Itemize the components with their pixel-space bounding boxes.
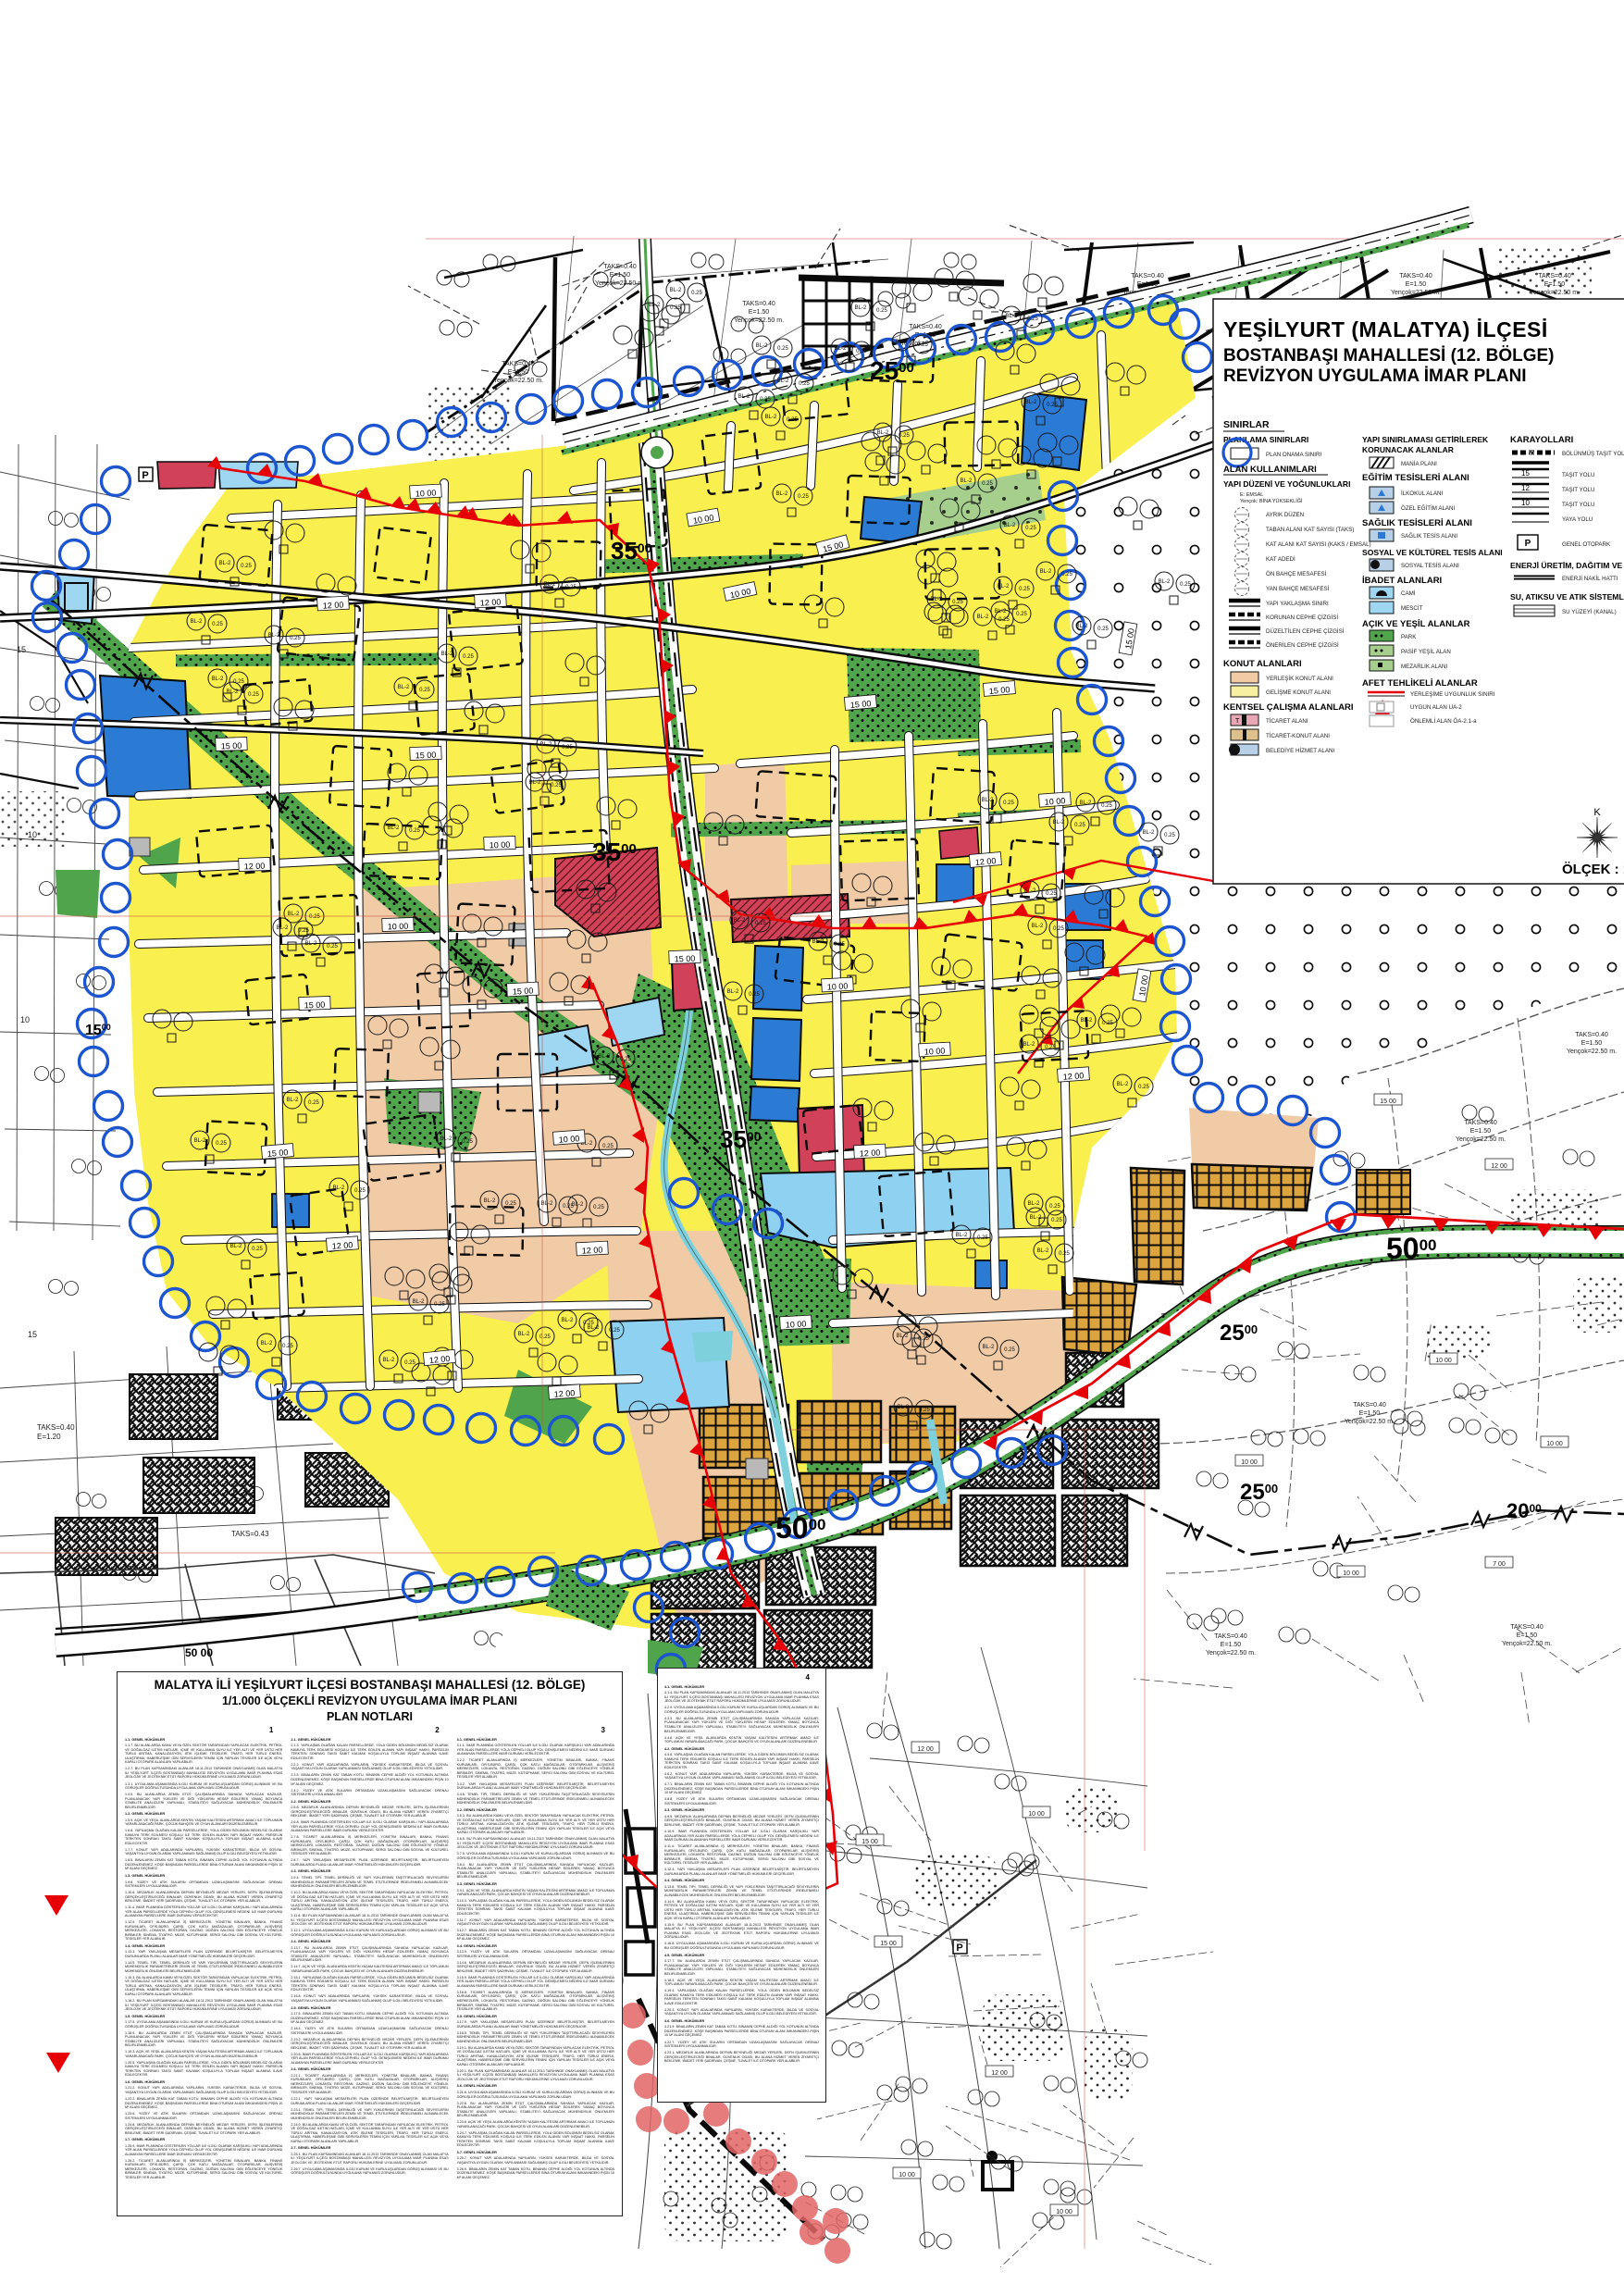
svg-text:15 00: 15 00 bbox=[304, 1000, 326, 1011]
svg-text:TİCARET ALANI: TİCARET ALANI bbox=[1266, 718, 1308, 725]
svg-text:0.25: 0.25 bbox=[241, 564, 252, 569]
svg-text:0.25: 0.25 bbox=[691, 291, 702, 296]
svg-text:E: EMSAL: E: EMSAL bbox=[1240, 492, 1263, 498]
svg-text:15 00: 15 00 bbox=[1380, 1098, 1396, 1105]
svg-text:Yençok=22.50 m.: Yençok=22.50 m. bbox=[1567, 1049, 1617, 1055]
svg-text:0.25: 0.25 bbox=[1102, 1021, 1113, 1026]
svg-text:ÖNLEMLİ ALAN ÖA-2.1-a: ÖNLEMLİ ALAN ÖA-2.1-a bbox=[1410, 718, 1477, 725]
svg-text:E=1.20: E=1.20 bbox=[37, 1433, 61, 1441]
svg-text:12 00: 12 00 bbox=[244, 862, 266, 872]
svg-text:KORUNACAK ALANLAR: KORUNACAK ALANLAR bbox=[1362, 445, 1454, 454]
svg-text:BL-2: BL-2 bbox=[1040, 569, 1052, 575]
svg-text:E=1.50: E=1.50 bbox=[1470, 1128, 1491, 1135]
svg-text:12: 12 bbox=[1521, 484, 1530, 492]
svg-text:0.25: 0.25 bbox=[505, 1201, 516, 1207]
svg-text:BL-2: BL-2 bbox=[1143, 830, 1155, 836]
svg-text:YAN BAHÇE MESAFESİ: YAN BAHÇE MESAFESİ bbox=[1266, 586, 1330, 592]
svg-text:TAKS=0.40: TAKS=0.40 bbox=[37, 1423, 75, 1432]
svg-text:BL-2: BL-2 bbox=[440, 1136, 452, 1142]
svg-text:BL-2: BL-2 bbox=[1028, 1201, 1040, 1207]
svg-text:BL-2: BL-2 bbox=[1037, 1248, 1049, 1254]
svg-text:10 00: 10 00 bbox=[1546, 1441, 1563, 1447]
svg-text:BL-2: BL-2 bbox=[765, 415, 777, 420]
svg-text:12 00: 12 00 bbox=[331, 1240, 353, 1251]
svg-text:BL-2: BL-2 bbox=[261, 1341, 273, 1347]
svg-text:0.25: 0.25 bbox=[562, 745, 573, 751]
svg-text:KAT ALANI KAT SAYISI (KAKS / E: KAT ALANI KAT SAYISI (KAKS / EMSAL) bbox=[1266, 541, 1371, 548]
svg-text:BL-2: BL-2 bbox=[1004, 523, 1016, 528]
svg-text:BL-2: BL-2 bbox=[529, 780, 541, 786]
svg-text:ÖN BAHÇE MESAFESİ: ÖN BAHÇE MESAFESİ bbox=[1266, 571, 1327, 577]
svg-text:BL-2: BL-2 bbox=[896, 340, 908, 345]
svg-text:0.25: 0.25 bbox=[309, 914, 320, 920]
svg-text:E=1.50: E=1.50 bbox=[1581, 1040, 1602, 1047]
svg-text:SAĞLIK TESİSLERİ ALANI: SAĞLIK TESİSLERİ ALANI bbox=[1362, 517, 1472, 528]
svg-text:BL-2: BL-2 bbox=[1006, 314, 1018, 319]
svg-text:MESCİT: MESCİT bbox=[1401, 605, 1423, 612]
svg-text:ÖNERİLEN CEPHE ÇİZGİSİ: ÖNERİLEN CEPHE ÇİZGİSİ bbox=[1266, 642, 1339, 649]
svg-text:0.25: 0.25 bbox=[918, 1336, 929, 1342]
svg-text:12 00: 12 00 bbox=[974, 856, 996, 867]
svg-text:0.25: 0.25 bbox=[308, 1100, 319, 1106]
svg-text:Yençok=22.50 m.: Yençok=22.50 m. bbox=[1502, 1641, 1552, 1647]
svg-text:PASİF YEŞİL ALAN: PASİF YEŞİL ALAN bbox=[1401, 649, 1451, 655]
svg-text:BL-2: BL-2 bbox=[518, 1332, 530, 1337]
svg-text:0.25: 0.25 bbox=[1049, 1204, 1060, 1210]
svg-text:Yençok=22.50 m.: Yençok=22.50 m. bbox=[1206, 1650, 1256, 1657]
svg-text:0.25: 0.25 bbox=[409, 828, 420, 834]
svg-text:YAPI DÜZENİ VE YOĞUNLUKLARI: YAPI DÜZENİ VE YOĞUNLUKLARI bbox=[1223, 478, 1350, 489]
svg-text:15 00: 15 00 bbox=[221, 741, 242, 751]
svg-text:GELİŞME KONUT ALANI: GELİŞME KONUT ALANI bbox=[1266, 689, 1331, 696]
svg-text:BL-2: BL-2 bbox=[898, 1405, 910, 1410]
svg-text:CAMİ: CAMİ bbox=[1401, 590, 1416, 597]
svg-text:0.25: 0.25 bbox=[404, 1360, 415, 1366]
svg-text:TAKS=0.40: TAKS=0.40 bbox=[1538, 273, 1571, 279]
svg-text:BL-2: BL-2 bbox=[738, 394, 750, 400]
svg-text:10: 10 bbox=[20, 1015, 30, 1024]
svg-text:12 00: 12 00 bbox=[860, 1148, 881, 1158]
svg-text:TAKS=0.40: TAKS=0.40 bbox=[1575, 1032, 1608, 1038]
svg-text:0.25: 0.25 bbox=[760, 397, 771, 403]
svg-text:0.25: 0.25 bbox=[1047, 403, 1058, 408]
svg-text:0.25: 0.25 bbox=[290, 636, 301, 641]
svg-text:BL-2: BL-2 bbox=[572, 1202, 584, 1208]
svg-text:0.25: 0.25 bbox=[1053, 926, 1064, 932]
svg-text:10 00: 10 00 bbox=[1241, 1459, 1258, 1466]
svg-text:0.25: 0.25 bbox=[917, 342, 928, 348]
svg-text:AYRIK DÜZEN: AYRIK DÜZEN bbox=[1266, 512, 1304, 518]
svg-text:BL-2: BL-2 bbox=[1076, 624, 1088, 629]
svg-text:ÖZEL EĞİTİM ALANI: ÖZEL EĞİTİM ALANI bbox=[1401, 505, 1456, 512]
svg-text:SOSYAL VE KÜLTÜREL TESİS ALANI: SOSYAL VE KÜLTÜREL TESİS ALANI bbox=[1362, 548, 1503, 557]
svg-text:P: P bbox=[1525, 539, 1531, 549]
svg-text:0.25: 0.25 bbox=[434, 1302, 445, 1308]
svg-text:0.25: 0.25 bbox=[919, 1408, 930, 1413]
svg-text:12 00: 12 00 bbox=[323, 600, 344, 610]
svg-text:10 00: 10 00 bbox=[388, 922, 409, 932]
svg-text:0.25: 0.25 bbox=[1061, 572, 1072, 577]
svg-text:ENERJİ NAKİL HATTI: ENERJİ NAKİL HATTI bbox=[1562, 576, 1618, 582]
svg-text:BL-2: BL-2 bbox=[956, 1233, 968, 1238]
svg-text:AÇIK VE YEŞİL ALANLAR: AÇIK VE YEŞİL ALANLAR bbox=[1362, 619, 1470, 629]
svg-text:İBADET ALANLARI: İBADET ALANLARI bbox=[1362, 576, 1442, 586]
svg-text:TAKS=0.40: TAKS=0.40 bbox=[603, 264, 637, 270]
svg-text:REVİZYON UYGULAMA İMAR PLANI: REVİZYON UYGULAMA İMAR PLANI bbox=[1223, 366, 1527, 386]
svg-text:0.25: 0.25 bbox=[670, 305, 681, 311]
svg-text:0.25: 0.25 bbox=[899, 433, 910, 439]
svg-text:TİCARET-KONUT ALANI: TİCARET-KONUT ALANI bbox=[1266, 733, 1330, 739]
svg-text:0.25: 0.25 bbox=[216, 1141, 227, 1147]
svg-text:0.25: 0.25 bbox=[977, 1235, 988, 1241]
svg-text:BL-2: BL-2 bbox=[727, 989, 739, 995]
svg-text:BL-2: BL-2 bbox=[1080, 800, 1092, 806]
svg-text:0.25: 0.25 bbox=[856, 349, 867, 354]
svg-text:0.25: 0.25 bbox=[463, 654, 474, 660]
svg-text:BL-2: BL-2 bbox=[776, 491, 788, 497]
svg-text:SAĞLIK TESİS ALANI: SAĞLIK TESİS ALANI bbox=[1401, 533, 1457, 540]
svg-text:BL-2: BL-2 bbox=[277, 925, 289, 931]
svg-text:BL-2: BL-2 bbox=[777, 379, 789, 384]
svg-text:TAŞIT YOLU: TAŞIT YOLU bbox=[1562, 472, 1594, 478]
svg-text:BL-2: BL-2 bbox=[734, 918, 746, 924]
svg-text:SU YÜZEYİ (KANAL): SU YÜZEYİ (KANAL) bbox=[1562, 609, 1617, 615]
svg-text:10: 10 bbox=[1521, 499, 1530, 507]
svg-text:10: 10 bbox=[28, 830, 37, 839]
svg-text:BL-2: BL-2 bbox=[398, 685, 410, 690]
svg-text:BL-2: BL-2 bbox=[191, 619, 203, 625]
svg-text:0.25: 0.25 bbox=[1027, 316, 1038, 322]
svg-text:0.25: 0.25 bbox=[982, 481, 993, 487]
svg-text:İLKOKUL ALANI: İLKOKUL ALANI bbox=[1401, 490, 1443, 497]
svg-text:TAKS=0.40: TAKS=0.40 bbox=[1353, 1402, 1386, 1409]
svg-text:0.25: 0.25 bbox=[298, 928, 309, 934]
svg-text:TABAN ALANI KAT SAYISI (TAKS): TABAN ALANI KAT SAYISI (TAKS) bbox=[1266, 527, 1354, 533]
svg-text:0.25: 0.25 bbox=[620, 1057, 631, 1062]
svg-text:0.25: 0.25 bbox=[1019, 587, 1030, 592]
svg-text:15 00: 15 00 bbox=[415, 751, 437, 761]
svg-text:K: K bbox=[1593, 807, 1601, 818]
svg-text:15: 15 bbox=[17, 645, 26, 654]
svg-text:0.25: 0.25 bbox=[1164, 833, 1175, 838]
svg-text:0.25: 0.25 bbox=[327, 944, 338, 949]
svg-text:KAT ADEDİ: KAT ADEDİ bbox=[1266, 556, 1295, 563]
svg-text:BL-2: BL-2 bbox=[756, 343, 768, 349]
svg-text:Yençok: BİNA YÜKSEKLİĞİ: Yençok: BİNA YÜKSEKLİĞİ bbox=[1240, 498, 1303, 504]
svg-text:YEŞİLYURT (MALATYA) İLÇESİ: YEŞİLYURT (MALATYA) İLÇESİ bbox=[1223, 317, 1548, 341]
svg-text:0.25: 0.25 bbox=[252, 1247, 263, 1252]
svg-text:15: 15 bbox=[28, 1330, 37, 1339]
svg-text:Yençok=22.50 m.: Yençok=22.50 m. bbox=[1456, 1136, 1506, 1143]
svg-text:E=1.50: E=1.50 bbox=[610, 272, 630, 279]
svg-text:12 00: 12 00 bbox=[582, 1245, 603, 1255]
svg-text:TAŞIT YOLU: TAŞIT YOLU bbox=[1562, 502, 1594, 508]
svg-text:0.25: 0.25 bbox=[1059, 1251, 1070, 1257]
svg-text:P: P bbox=[142, 470, 148, 481]
svg-text:BOSTANBAŞI MAHALLESİ (12. BÖ: BOSTANBAŞI MAHALLESİ (12. BÖLGE) bbox=[1223, 346, 1555, 366]
svg-text:BL-2: BL-2 bbox=[230, 1244, 242, 1249]
svg-text:BÖLÜNMÜŞ TAŞIT YOLU: BÖLÜNMÜŞ TAŞIT YOLU bbox=[1562, 451, 1624, 457]
svg-text:KORUNAN CEPHE ÇİZGİSİ: KORUNAN CEPHE ÇİZGİSİ bbox=[1266, 614, 1338, 621]
svg-text:E=1.50: E=1.50 bbox=[1544, 281, 1565, 288]
svg-text:10 00: 10 00 bbox=[1044, 796, 1065, 807]
svg-text:BL-2: BL-2 bbox=[855, 305, 867, 311]
svg-text:0.25: 0.25 bbox=[1101, 803, 1112, 809]
svg-text:TAŞIT YOLU: TAŞIT YOLU bbox=[1562, 487, 1594, 493]
svg-text:BL-2: BL-2 bbox=[194, 1138, 206, 1144]
svg-text:15 00: 15 00 bbox=[849, 699, 871, 710]
svg-text:12 00: 12 00 bbox=[480, 597, 502, 607]
svg-text:PARK: PARK bbox=[1401, 634, 1417, 640]
svg-text:BL-2: BL-2 bbox=[219, 561, 231, 566]
svg-text:10 00: 10 00 bbox=[415, 488, 437, 498]
svg-text:0.25: 0.25 bbox=[749, 992, 760, 998]
svg-text:KARAYOLLARI: KARAYOLLARI bbox=[1510, 435, 1573, 445]
svg-text:0.25: 0.25 bbox=[798, 494, 809, 500]
svg-text:BL-2: BL-2 bbox=[441, 652, 453, 657]
svg-text:AFET TEHLİKELİ ALANLAR: AFET TEHLİKELİ ALANLAR bbox=[1362, 678, 1478, 689]
svg-text:0.25: 0.25 bbox=[583, 1321, 594, 1326]
svg-text:BL-2: BL-2 bbox=[305, 941, 317, 947]
svg-text:ENERJİ ÜRETİM, DAĞITIM VE DEPO: ENERJİ ÜRETİM, DAĞITIM VE DEPO bbox=[1510, 560, 1624, 570]
svg-text:MANİA PLANI: MANİA PLANI bbox=[1401, 461, 1437, 467]
svg-text:BL-2: BL-2 bbox=[995, 609, 1007, 614]
svg-text:ÖLÇEK : 1/1.0: ÖLÇEK : 1/1.0 bbox=[1562, 862, 1624, 877]
svg-text:BL-2: BL-2 bbox=[961, 478, 973, 484]
svg-text:15 00: 15 00 bbox=[513, 986, 534, 996]
svg-text:BL-2: BL-2 bbox=[484, 1198, 496, 1204]
svg-text:BL-2: BL-2 bbox=[1024, 888, 1036, 894]
svg-text:TAKS=0.40: TAKS=0.40 bbox=[909, 324, 942, 330]
svg-text:BL-2: BL-2 bbox=[1117, 1082, 1129, 1087]
svg-text:0.25: 0.25 bbox=[212, 622, 223, 627]
svg-text:TAKS=0.40: TAKS=0.40 bbox=[1464, 1120, 1497, 1126]
svg-text:SOSYAL TESİS ALANI: SOSYAL TESİS ALANI bbox=[1401, 563, 1459, 569]
svg-text:YAPI YAKLAŞMA SINIRI: YAPI YAKLAŞMA SINIRI bbox=[1266, 601, 1329, 607]
svg-text:YERLEŞİK KONUT ALANI: YERLEŞİK KONUT ALANI bbox=[1266, 676, 1333, 682]
svg-text:BL-2: BL-2 bbox=[1025, 400, 1037, 405]
svg-text:SU, ATIKSU VE ATIK SİSTEMLERİ: SU, ATIKSU VE ATIK SİSTEMLERİ bbox=[1510, 592, 1624, 602]
svg-text:15 00: 15 00 bbox=[988, 685, 1010, 696]
svg-text:0.25: 0.25 bbox=[1016, 612, 1027, 617]
svg-text:10 00: 10 00 bbox=[827, 981, 849, 991]
svg-text:E=1.50: E=1.50 bbox=[1406, 281, 1426, 288]
svg-text:0.25: 0.25 bbox=[1003, 800, 1014, 806]
svg-text:SINIRLAR: SINIRLAR bbox=[1223, 419, 1270, 430]
svg-text:YAPI SINIRLAMASI GETİRİLEREK: YAPI SINIRLAMASI GETİRİLEREK bbox=[1362, 435, 1489, 444]
svg-text:Yençok=22.50 m.: Yençok=22.50 m. bbox=[734, 317, 784, 324]
svg-text:10 00: 10 00 bbox=[490, 840, 511, 850]
svg-text:BL-2: BL-2 bbox=[835, 346, 847, 352]
svg-text:YERLEŞİME UYGUNLUK SINIRI: YERLEŞİME UYGUNLUK SINIRI bbox=[1410, 691, 1495, 698]
svg-text:0.25: 0.25 bbox=[1051, 1218, 1062, 1223]
svg-text:BL-2: BL-2 bbox=[541, 1201, 553, 1207]
svg-text:GENEL OTOPARK: GENEL OTOPARK bbox=[1562, 541, 1611, 548]
svg-text:BL-2: BL-2 bbox=[227, 689, 239, 695]
svg-text:BL-2: BL-2 bbox=[287, 1098, 299, 1103]
svg-text:EĞİTİM TESİSLERİ ALANI: EĞİTİM TESİSLERİ ALANI bbox=[1362, 472, 1469, 483]
svg-text:12 00: 12 00 bbox=[553, 1388, 575, 1399]
svg-text:0.25: 0.25 bbox=[876, 308, 887, 314]
svg-text:PLAN ONAMA SINIRI: PLAN ONAMA SINIRI bbox=[1266, 452, 1321, 458]
svg-text:0.25: 0.25 bbox=[1074, 823, 1085, 828]
svg-text:10 00: 10 00 bbox=[786, 1319, 807, 1329]
svg-text:TAKS=0.40: TAKS=0.40 bbox=[742, 301, 775, 307]
svg-text:0.25: 0.25 bbox=[998, 617, 1010, 623]
svg-text:BL-2: BL-2 bbox=[599, 1054, 611, 1060]
svg-text:0.25: 0.25 bbox=[462, 1139, 473, 1145]
svg-text:TAKS=0.43: TAKS=0.43 bbox=[231, 1530, 269, 1538]
svg-text:0.25: 0.25 bbox=[354, 1188, 366, 1194]
svg-text:TAKS=0.40: TAKS=0.40 bbox=[1510, 1624, 1543, 1631]
svg-text:BL-2: BL-2 bbox=[383, 1358, 395, 1363]
svg-text:10 00: 10 00 bbox=[1343, 1570, 1359, 1577]
svg-text:0.25: 0.25 bbox=[777, 346, 788, 352]
svg-text:BL-2: BL-2 bbox=[1053, 820, 1065, 825]
svg-text:0.25: 0.25 bbox=[1138, 1085, 1149, 1090]
svg-text:BL-2: BL-2 bbox=[413, 1299, 425, 1305]
svg-text:0.25: 0.25 bbox=[609, 1328, 620, 1334]
svg-text:0.25: 0.25 bbox=[1097, 627, 1109, 632]
svg-text:E=1.50: E=1.50 bbox=[749, 309, 769, 316]
svg-text:0.25: 0.25 bbox=[1004, 1347, 1015, 1353]
svg-text:KENTSEL ÇALIŞMA ALANLARI: KENTSEL ÇALIŞMA ALANLARI bbox=[1223, 702, 1354, 713]
svg-text:0.25: 0.25 bbox=[551, 783, 562, 788]
svg-text:BL-2: BL-2 bbox=[977, 614, 989, 620]
svg-text:10 00: 10 00 bbox=[924, 1046, 946, 1056]
svg-text:YAYA YOLU: YAYA YOLU bbox=[1562, 516, 1593, 523]
svg-text:12 00: 12 00 bbox=[1062, 1071, 1084, 1082]
svg-text:7 00: 7 00 bbox=[1493, 1561, 1506, 1568]
svg-text:0.25: 0.25 bbox=[1025, 526, 1036, 531]
svg-text:BL-2: BL-2 bbox=[212, 676, 224, 682]
svg-text:0.25: 0.25 bbox=[539, 1334, 551, 1340]
svg-text:BL-2: BL-2 bbox=[983, 1345, 995, 1350]
svg-text:UYGUN ALAN UA-2: UYGUN ALAN UA-2 bbox=[1410, 704, 1462, 711]
svg-text:0.25: 0.25 bbox=[419, 688, 430, 693]
svg-text:BL-2: BL-2 bbox=[1030, 1215, 1042, 1221]
svg-text:DÜZELTİLEN CEPHE ÇİZGİSİ: DÜZELTİLEN CEPHE ÇİZGİSİ bbox=[1266, 628, 1345, 635]
svg-text:0.25: 0.25 bbox=[1045, 1045, 1056, 1050]
svg-text:10 00: 10 00 bbox=[1435, 1358, 1452, 1364]
svg-text:60: 60 bbox=[1527, 451, 1534, 457]
svg-text:0.25: 0.25 bbox=[233, 679, 244, 685]
svg-text:E=1.50: E=1.50 bbox=[1359, 1410, 1380, 1417]
svg-text:ALAN KULLANIMLARI: ALAN KULLANIMLARI bbox=[1223, 465, 1317, 475]
svg-text:MEZARLIK ALANI: MEZARLIK ALANI bbox=[1401, 664, 1447, 670]
svg-text:10 00: 10 00 bbox=[558, 1134, 579, 1145]
svg-text:0.25: 0.25 bbox=[799, 381, 810, 387]
svg-text:BL-2: BL-2 bbox=[670, 288, 682, 293]
svg-text:E=1.50: E=1.50 bbox=[508, 369, 528, 376]
svg-text:15: 15 bbox=[1521, 469, 1530, 478]
svg-text:BL-2: BL-2 bbox=[897, 1334, 909, 1339]
svg-text:0.25: 0.25 bbox=[1046, 891, 1057, 897]
svg-text:0.25: 0.25 bbox=[248, 692, 259, 698]
svg-text:0.25: 0.25 bbox=[602, 1144, 614, 1149]
svg-text:TAKS=0.40: TAKS=0.40 bbox=[1399, 273, 1432, 279]
svg-text:0.25: 0.25 bbox=[755, 921, 766, 926]
svg-text:KONUT ALANLARI: KONUT ALANLARI bbox=[1223, 659, 1302, 669]
svg-text:BL-2: BL-2 bbox=[1032, 924, 1044, 929]
svg-text:15 00: 15 00 bbox=[267, 1148, 288, 1159]
svg-text:BL-2: BL-2 bbox=[562, 1318, 574, 1323]
svg-text:Yençok=22.50 m.: Yençok=22.50 m. bbox=[493, 378, 543, 384]
svg-text:50 00: 50 00 bbox=[185, 1646, 213, 1659]
svg-text:BL-2: BL-2 bbox=[388, 825, 400, 831]
svg-text:BL-2: BL-2 bbox=[1023, 1042, 1035, 1048]
svg-text:0.25: 0.25 bbox=[593, 1205, 604, 1210]
svg-text:0.25: 0.25 bbox=[952, 600, 963, 605]
svg-text:E=1.50: E=1.50 bbox=[1221, 1642, 1241, 1648]
svg-text:12 00: 12 00 bbox=[1491, 1163, 1507, 1170]
svg-text:BELEDİYE HİZMET ALANI: BELEDİYE HİZMET ALANI bbox=[1266, 748, 1334, 754]
svg-text:TAKS=0.40: TAKS=0.40 bbox=[1214, 1633, 1247, 1640]
svg-text:TAKS=0.40: TAKS=0.40 bbox=[1131, 273, 1164, 279]
svg-text:BL-2: BL-2 bbox=[649, 303, 661, 308]
svg-text:Yençok=22.50 m.: Yençok=22.50 m. bbox=[1391, 290, 1441, 296]
svg-text:0.25: 0.25 bbox=[1180, 582, 1191, 588]
svg-text:15 00: 15 00 bbox=[675, 954, 696, 964]
svg-text:T: T bbox=[1235, 718, 1240, 725]
svg-text:0.25: 0.25 bbox=[282, 1344, 293, 1349]
svg-text:Yençok=22.50 m.: Yençok=22.50 m. bbox=[1345, 1419, 1395, 1425]
svg-text:BL-2: BL-2 bbox=[877, 430, 889, 436]
svg-text:BL-2: BL-2 bbox=[1159, 579, 1171, 585]
